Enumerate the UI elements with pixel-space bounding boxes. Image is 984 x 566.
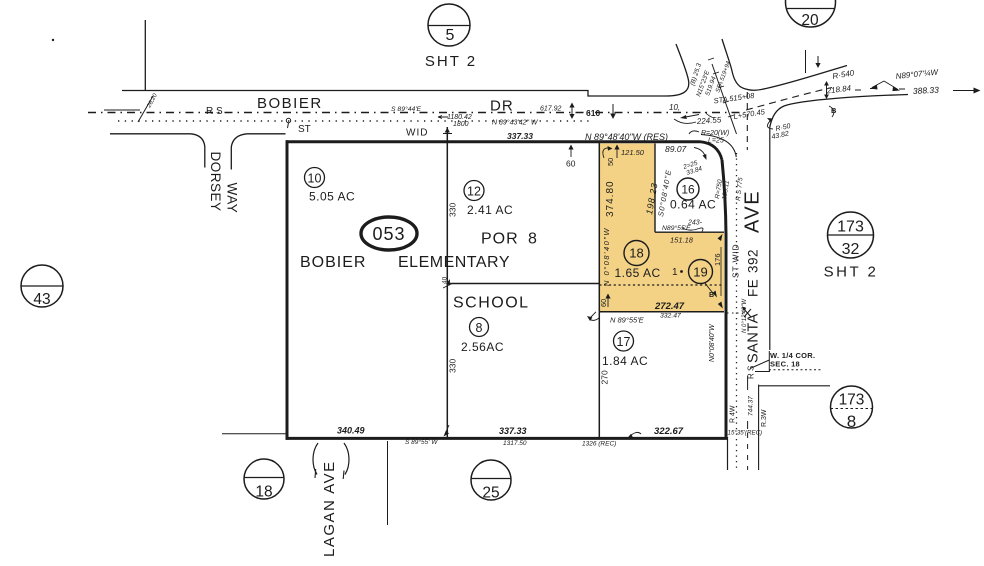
svg-text:N 89°55'E: N 89°55'E (610, 316, 645, 325)
svg-text:151.18: 151.18 (670, 236, 694, 245)
svg-text:N89°55'E: N89°55'E (662, 224, 691, 232)
svg-text:224.55: 224.55 (696, 115, 723, 126)
svg-text:053: 053 (372, 224, 405, 244)
svg-text:R.3W: R.3W (761, 409, 768, 427)
svg-text:R S: R S (747, 366, 756, 379)
svg-text:ST WID: ST WID (731, 244, 741, 278)
svg-text:2.56AC: 2.56AC (461, 340, 504, 354)
svg-text:N 0°08'40"W: N 0°08'40"W (602, 227, 611, 286)
svg-text:FE: FE (746, 279, 761, 297)
svg-text:25: 25 (482, 485, 499, 502)
svg-text:173: 173 (837, 219, 864, 236)
svg-text:392: 392 (746, 249, 761, 273)
svg-text:WAY: WAY (225, 183, 240, 214)
svg-text:610: 610 (586, 108, 600, 118)
svg-text:332.47: 332.47 (660, 313, 681, 320)
svg-text:337.33: 337.33 (507, 131, 533, 141)
svg-text:N 89°43'42" W: N 89°43'42" W (492, 119, 539, 127)
svg-text:12: 12 (467, 185, 481, 199)
svg-text:10,: 10, (669, 103, 680, 112)
svg-text:ELEMENTARY: ELEMENTARY (398, 254, 510, 271)
svg-text:L=25: L=25 (708, 138, 724, 145)
svg-text:R 4W: R 4W (730, 405, 737, 423)
svg-text:1180.42: 1180.42 (447, 114, 472, 121)
svg-text:1.84 AC: 1.84 AC (602, 354, 648, 368)
svg-text:S 89°55' W: S 89°55' W (405, 438, 438, 446)
svg-text:WID: WID (406, 128, 428, 139)
svg-text:330: 330 (448, 359, 458, 373)
svg-text:5: 5 (446, 27, 455, 44)
svg-text:LAGAN AVE: LAGAN AVE (321, 460, 338, 557)
svg-text:1326 (REC): 1326 (REC) (582, 441, 616, 448)
svg-text:18: 18 (629, 246, 643, 261)
svg-text:DORSEY: DORSEY (208, 152, 223, 212)
svg-text:1800: 1800 (453, 121, 469, 128)
svg-text:32: 32 (842, 241, 860, 258)
svg-text:272.47: 272.47 (654, 301, 685, 312)
svg-text:SHT 2: SHT 2 (425, 53, 477, 70)
svg-text:50: 50 (606, 158, 615, 166)
svg-text:8: 8 (528, 231, 537, 248)
svg-text:S 89°44'E: S 89°44'E (391, 105, 422, 113)
svg-text:POR: POR (481, 231, 519, 248)
svg-text:15°35'(REC): 15°35'(REC) (728, 430, 763, 437)
svg-text:10: 10 (308, 172, 322, 186)
svg-text:43: 43 (33, 291, 50, 308)
svg-text:322.67: 322.67 (654, 426, 684, 437)
svg-text:1: 1 (672, 267, 678, 278)
svg-text:330: 330 (448, 203, 458, 217)
svg-text:R=20(W): R=20(W) (701, 130, 729, 137)
svg-text:SHT 2: SHT 2 (824, 264, 879, 281)
svg-text:18: 18 (255, 484, 272, 501)
svg-text:N 89°48'40"W (RES): N 89°48'40"W (RES) (585, 132, 668, 142)
svg-text:89.07: 89.07 (665, 144, 687, 154)
svg-text:8: 8 (847, 412, 856, 431)
svg-text:B: B (709, 292, 714, 299)
svg-text:340.49: 340.49 (337, 426, 365, 436)
svg-text:R S: R S (206, 106, 223, 117)
svg-text:16: 16 (681, 183, 695, 197)
svg-text:2.41 AC: 2.41 AC (467, 203, 513, 217)
svg-text:617.92: 617.92 (540, 106, 562, 113)
svg-text:SEC. 18: SEC. 18 (770, 360, 800, 369)
svg-text:5.05 AC: 5.05 AC (309, 190, 355, 204)
svg-text:20: 20 (801, 12, 819, 29)
svg-text:N 0°12'40"W: N 0°12'40"W (742, 298, 748, 333)
svg-text:270: 270 (600, 370, 610, 384)
svg-text:19: 19 (693, 265, 707, 280)
svg-text:1317.50: 1317.50 (503, 440, 527, 447)
svg-text:DR: DR (490, 98, 514, 115)
svg-text:388.33: 388.33 (913, 85, 940, 96)
svg-text:173: 173 (839, 392, 865, 409)
svg-text:AVE: AVE (742, 190, 764, 233)
svg-text:0.64 AC: 0.64 AC (670, 198, 716, 212)
svg-text:60: 60 (566, 159, 576, 169)
svg-text:8: 8 (476, 321, 483, 335)
svg-text:60: 60 (599, 299, 608, 307)
svg-text:BOBIER: BOBIER (257, 95, 323, 112)
svg-text:SCHOOL: SCHOOL (453, 295, 530, 312)
svg-text:1.65 AC: 1.65 AC (615, 266, 661, 280)
svg-text:744.37: 744.37 (748, 396, 755, 416)
svg-text:121.50: 121.50 (621, 148, 645, 157)
svg-text:BOBIER: BOBIER (300, 254, 366, 271)
svg-text:17: 17 (617, 335, 631, 349)
svg-text:N0°08'40"W: N0°08'40"W (708, 323, 716, 362)
svg-text:337.33: 337.33 (499, 426, 527, 436)
svg-text:ST: ST (298, 124, 311, 135)
svg-text:374.80: 374.80 (605, 180, 616, 217)
